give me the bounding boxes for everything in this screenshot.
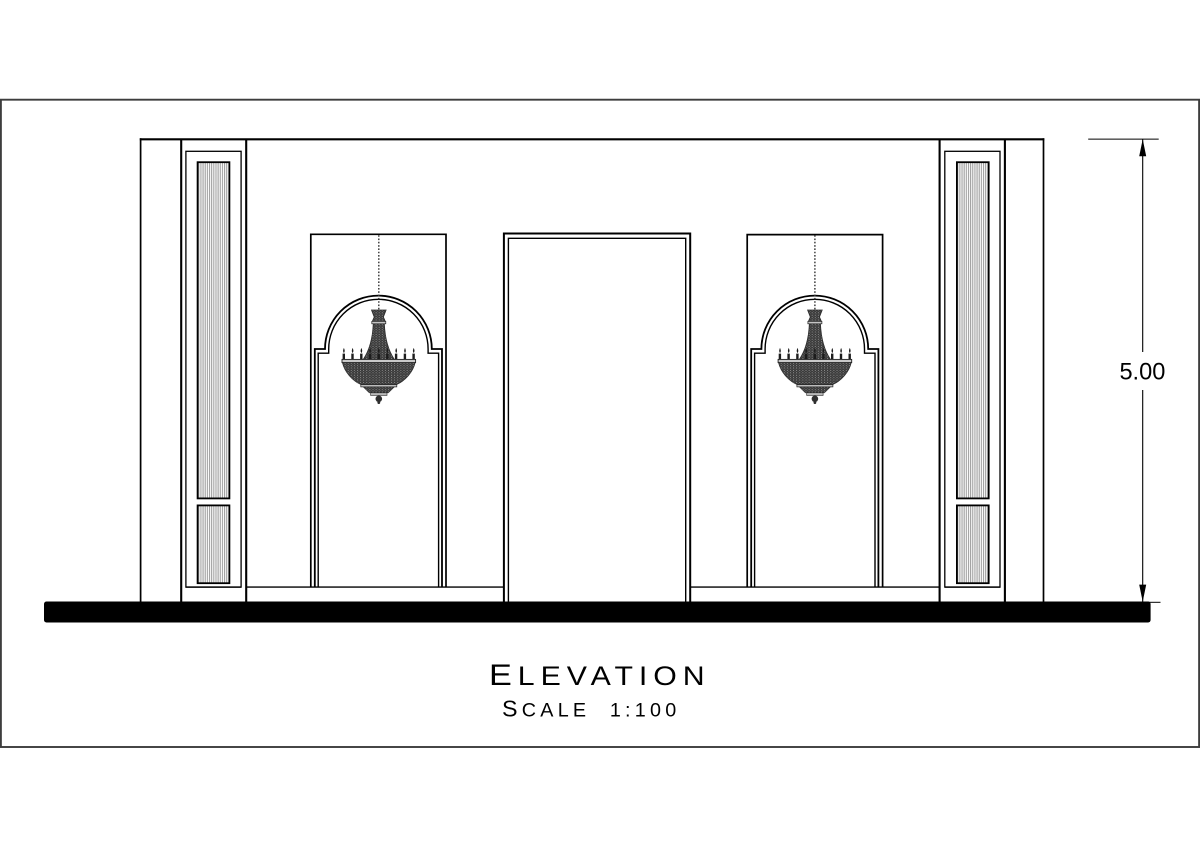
svg-text:ELEVATION: ELEVATION xyxy=(489,659,711,692)
svg-text:SCALE 1:100: SCALE 1:100 xyxy=(502,696,681,722)
svg-text:5.00: 5.00 xyxy=(1119,360,1165,386)
